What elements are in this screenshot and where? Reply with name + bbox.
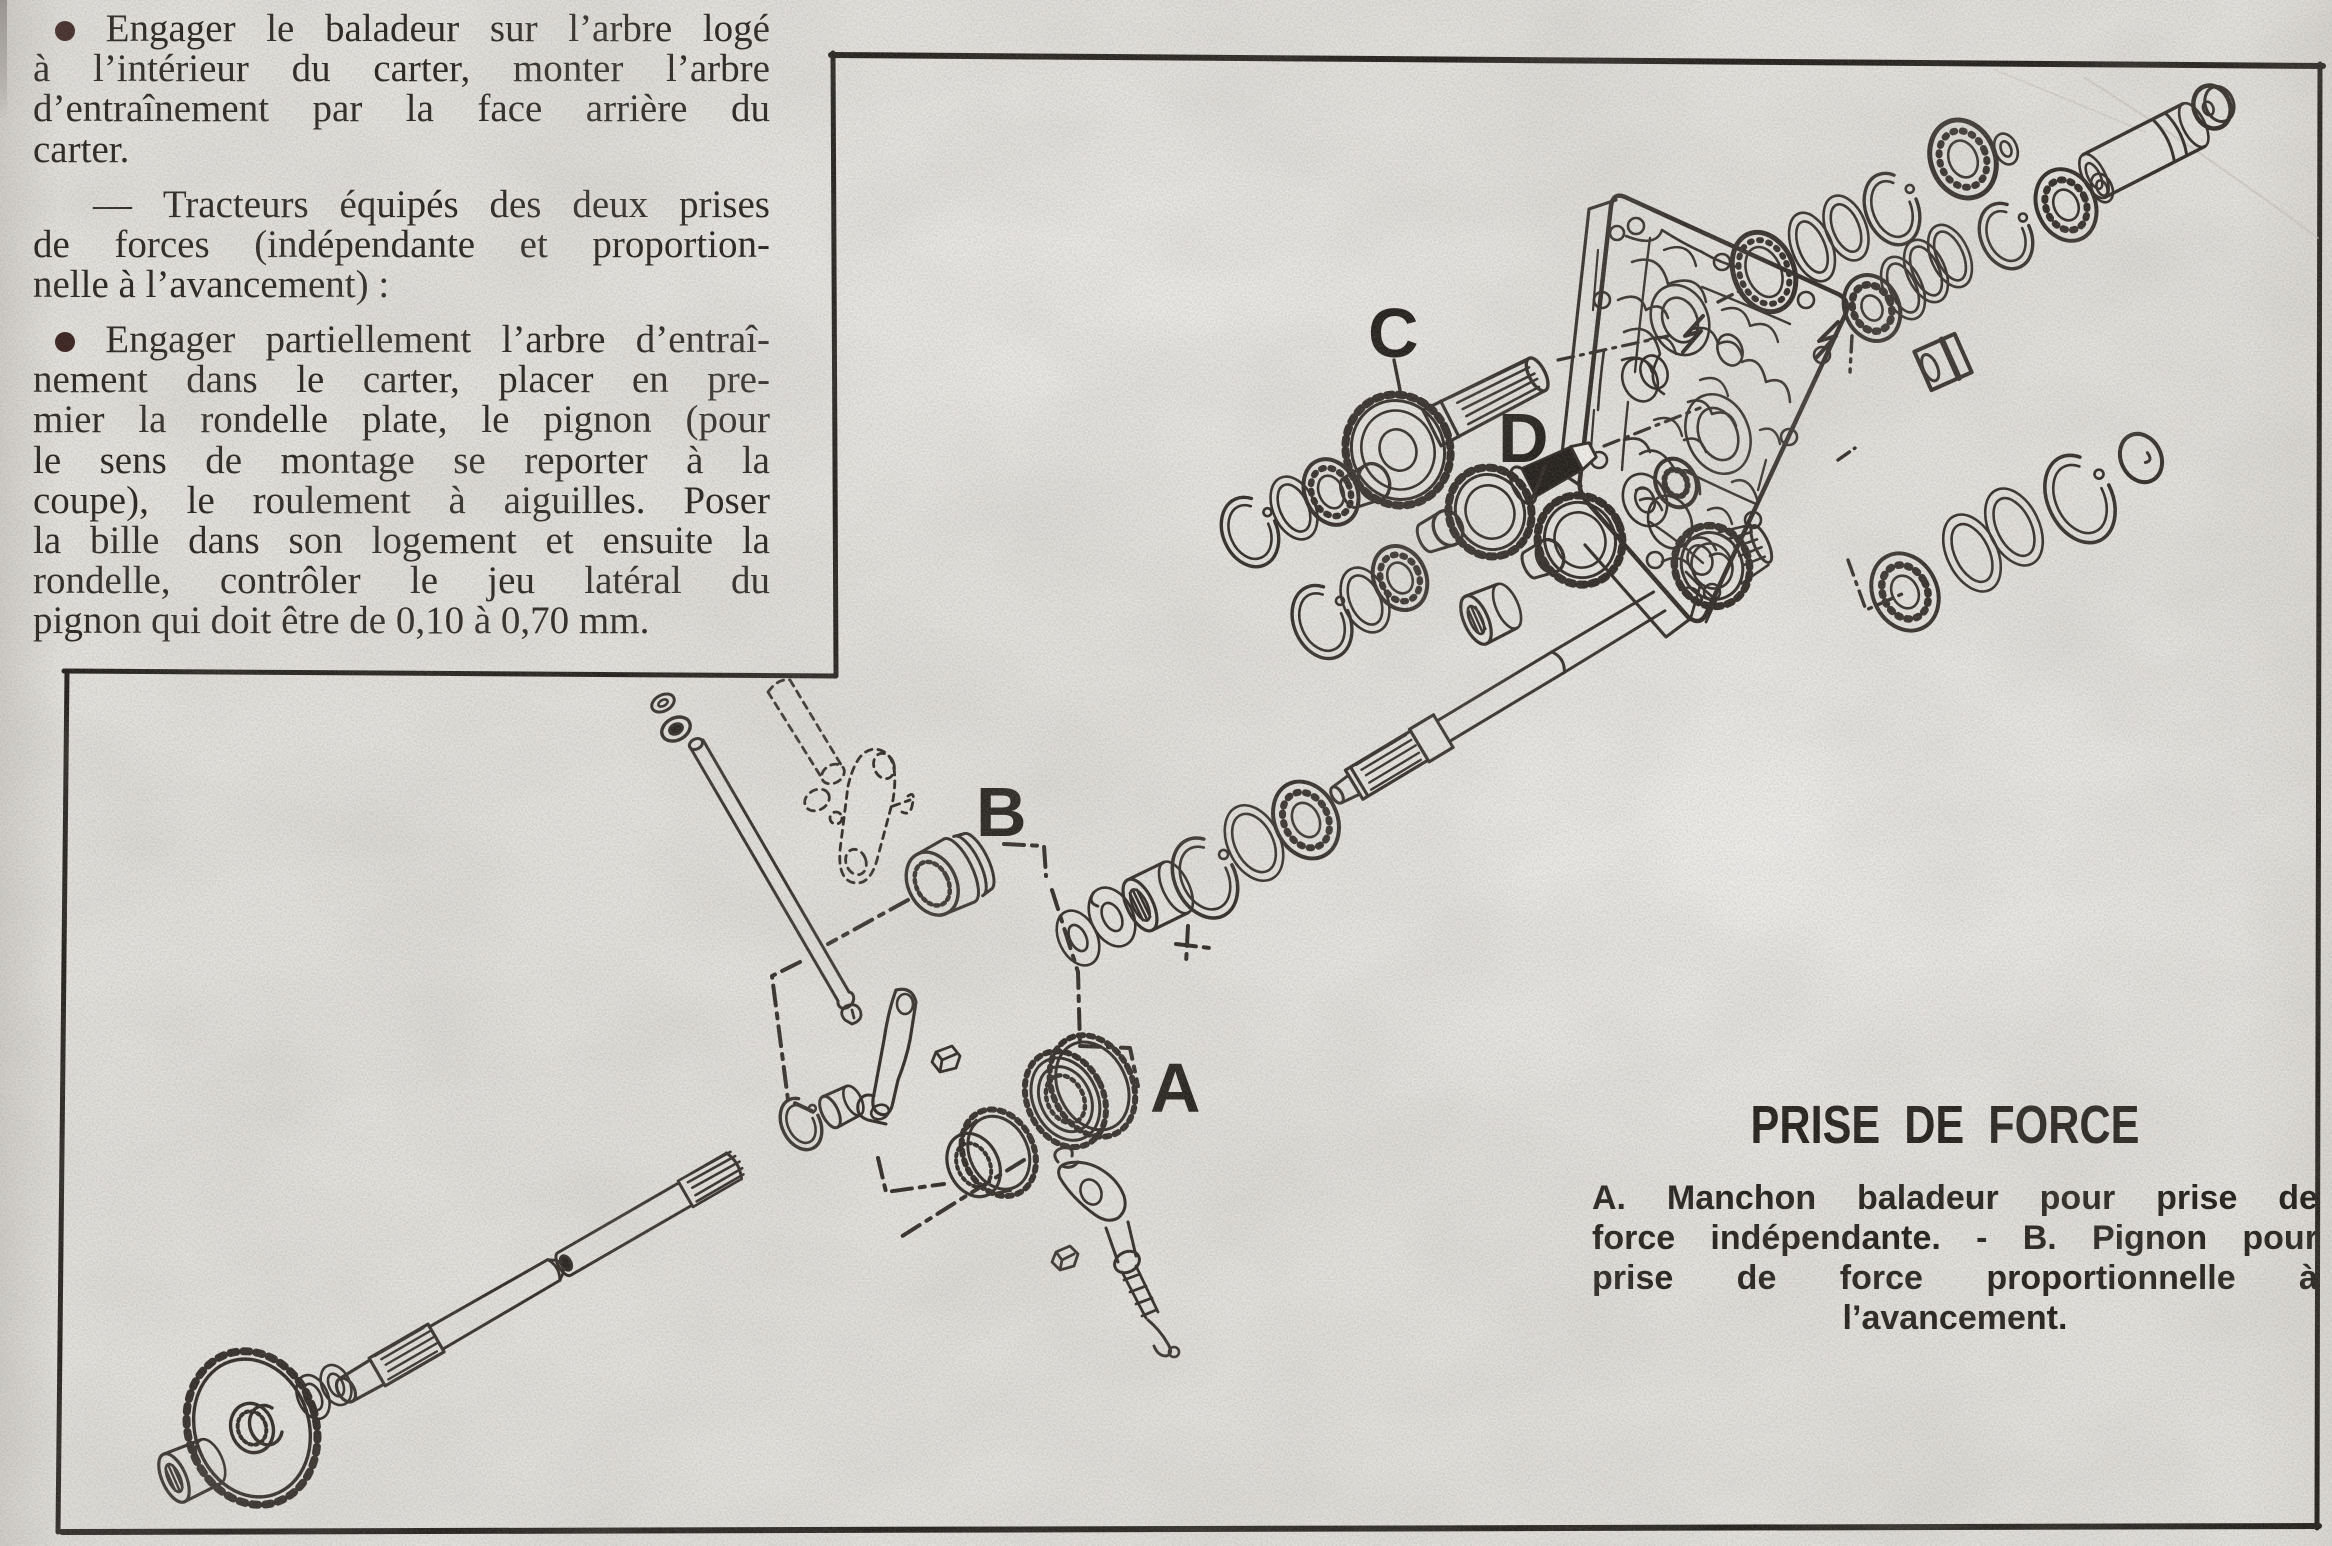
- svg-text:A: A: [1150, 1049, 1201, 1127]
- svg-text:B: B: [976, 773, 1027, 851]
- svg-text:C: C: [1368, 294, 1419, 372]
- svg-text:D: D: [1498, 399, 1549, 477]
